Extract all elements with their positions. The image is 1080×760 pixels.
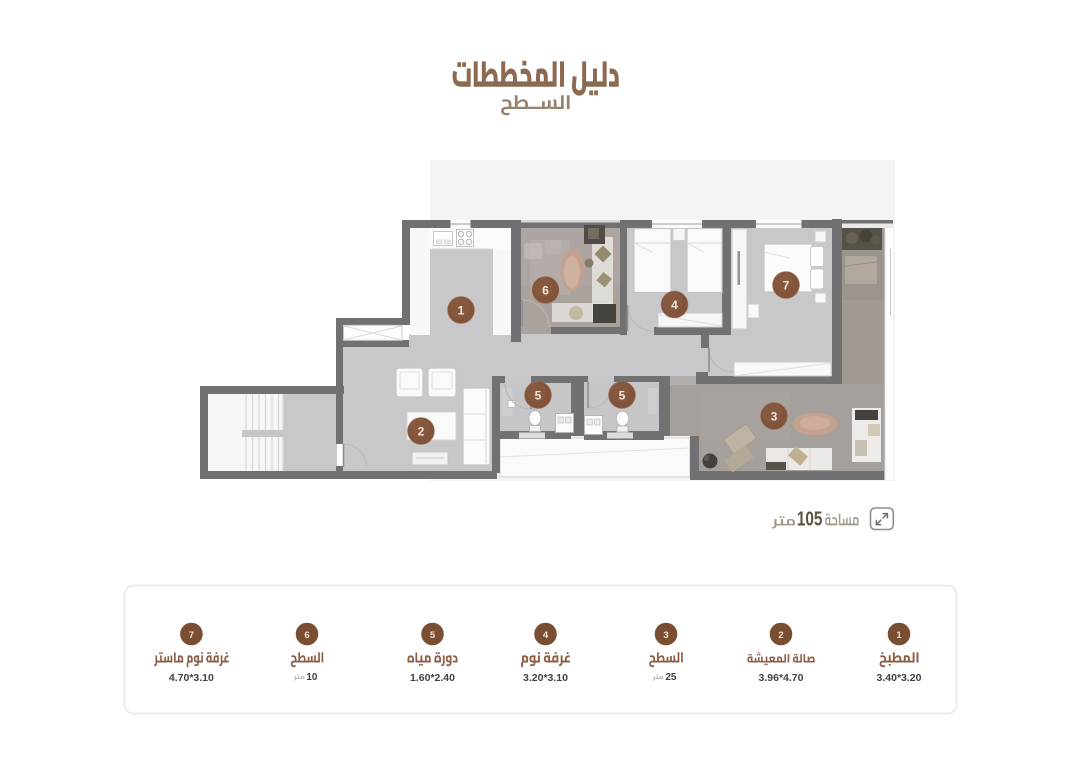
svg-text:2: 2 (418, 424, 425, 438)
svg-text:1: 1 (896, 630, 902, 641)
svg-text:5: 5 (619, 388, 626, 402)
svg-text:4.70*3.10: 4.70*3.10 (169, 672, 214, 684)
svg-text:1: 1 (458, 303, 465, 317)
svg-text:1.60*2.40: 1.60*2.40 (410, 672, 455, 684)
svg-text:3.40*3.20: 3.40*3.20 (877, 672, 922, 684)
svg-text:6: 6 (304, 630, 309, 641)
svg-text:2: 2 (778, 630, 783, 641)
svg-text:5: 5 (430, 630, 436, 641)
svg-text:3.20*3.10: 3.20*3.10 (523, 672, 568, 684)
svg-text:25: 25 (665, 672, 677, 683)
svg-text:3: 3 (663, 630, 668, 641)
svg-text:4: 4 (671, 298, 678, 312)
svg-text:7: 7 (189, 630, 194, 641)
svg-text:3: 3 (771, 409, 778, 423)
svg-text:5: 5 (535, 388, 542, 402)
svg-text:6: 6 (542, 283, 549, 297)
svg-text:10: 10 (306, 672, 318, 683)
svg-text:105: 105 (797, 508, 823, 530)
svg-text:3.96*4.70: 3.96*4.70 (759, 672, 804, 684)
svg-text:7: 7 (783, 278, 790, 292)
svg-text:4: 4 (543, 630, 549, 641)
